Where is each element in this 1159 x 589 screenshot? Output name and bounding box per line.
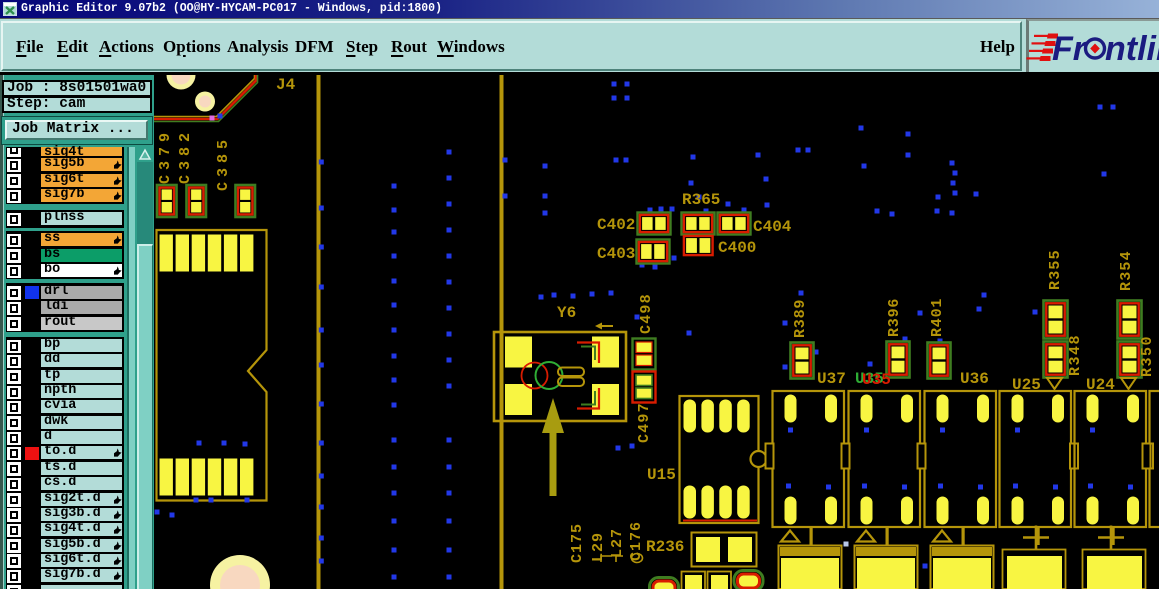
- svg-text:R354: R354: [1118, 250, 1135, 291]
- svg-text:C385: C385: [215, 135, 232, 191]
- svg-text:R389: R389: [792, 299, 809, 338]
- svg-text:C403: C403: [597, 245, 635, 263]
- svg-text:U37: U37: [817, 370, 846, 388]
- svg-text:ntlin: ntlin: [1105, 30, 1159, 68]
- svg-text:C404: C404: [753, 218, 792, 236]
- svg-text:R355: R355: [1047, 249, 1064, 290]
- svg-text:Y6: Y6: [557, 304, 576, 322]
- svg-text:U35: U35: [862, 371, 891, 389]
- svg-text:U36: U36: [960, 370, 989, 388]
- svg-text:L27: L27: [609, 528, 626, 558]
- svg-text:U15: U15: [647, 466, 676, 484]
- svg-text:C497: C497: [636, 402, 653, 443]
- svg-text:R350: R350: [1139, 335, 1156, 377]
- svg-text:C175: C175: [569, 523, 586, 563]
- svg-text:R401: R401: [929, 298, 946, 337]
- svg-text:L29: L29: [590, 532, 607, 562]
- svg-text:C382: C382: [177, 128, 194, 184]
- svg-text:C402: C402: [597, 216, 635, 234]
- svg-text:C498: C498: [638, 293, 655, 334]
- svg-text:R348: R348: [1067, 334, 1084, 376]
- svg-text:C176: C176: [628, 521, 645, 561]
- svg-text:Fr: Fr: [1052, 30, 1088, 68]
- svg-text:R236: R236: [646, 538, 684, 556]
- svg-text:C379: C379: [157, 128, 174, 184]
- svg-text:R365: R365: [682, 191, 720, 209]
- svg-text:J4: J4: [276, 76, 296, 94]
- svg-text:R396: R396: [886, 298, 903, 337]
- svg-text:C400: C400: [718, 239, 756, 257]
